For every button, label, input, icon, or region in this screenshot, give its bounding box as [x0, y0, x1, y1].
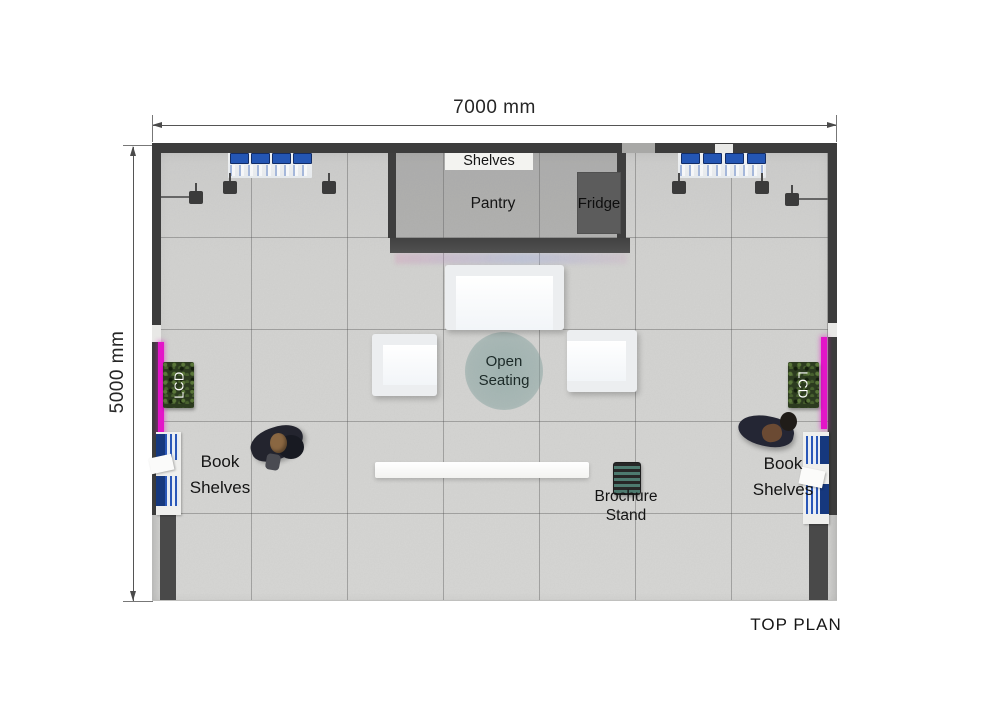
- plan-title: TOP PLAN: [711, 615, 881, 635]
- side-desk-left: [161, 196, 189, 198]
- lcd-label-left: LCD: [156, 370, 202, 401]
- dimension-left: 5000 mm: [107, 143, 149, 605]
- fridge: Fridge: [577, 172, 621, 234]
- grid-line: [347, 143, 348, 600]
- pantry-counter: [390, 238, 630, 253]
- wall-left-gap: [152, 325, 161, 342]
- extension-line-right: [836, 115, 837, 142]
- brochure-stand-label: Brochure Stand: [585, 487, 667, 525]
- arrow-left-icon: [152, 122, 162, 128]
- desk-papers: [230, 165, 310, 176]
- books: [165, 476, 179, 506]
- pantry-shelves-label: Shelves: [463, 153, 515, 169]
- chair: [672, 181, 686, 194]
- extension-tick-bottom: [123, 601, 153, 602]
- book-label-line1: Book: [743, 451, 823, 477]
- grid-line: [152, 513, 837, 514]
- extension-line-left: [152, 115, 153, 142]
- pantry-shelves: Shelves: [445, 151, 533, 170]
- monitor-icon: [272, 153, 291, 164]
- chair: [322, 181, 336, 194]
- person-head: [270, 433, 287, 453]
- exhibition-floor: Shelves Pantry Fridge: [152, 143, 837, 601]
- monitor-icon: [251, 153, 270, 164]
- sofa-seat: [567, 341, 626, 381]
- display-table: [375, 462, 589, 478]
- pantry-room: Shelves Pantry Fridge: [388, 143, 630, 253]
- open-seating-label-line2: Seating: [479, 371, 530, 390]
- book-label-line2: Shelves: [743, 477, 823, 503]
- person-bag: [265, 453, 282, 471]
- fridge-label: Fridge: [578, 195, 621, 212]
- arrow-up-icon: [130, 146, 136, 156]
- books: [156, 476, 165, 506]
- monitor-icon: [747, 153, 766, 164]
- door-gap-top: [622, 143, 655, 153]
- sofa-seat: [383, 345, 437, 385]
- extension-tick-top: [123, 145, 153, 146]
- open-seating-label-line1: Open: [486, 352, 523, 371]
- window-notch-top: [715, 144, 733, 153]
- lcd-label-right: LCD: [781, 370, 827, 401]
- floor-plan-canvas: 7000 mm 5000 mm: [0, 0, 1000, 717]
- dimension-line-vertical: [133, 147, 134, 601]
- monitor-icon: [725, 153, 744, 164]
- plant-box-left: LCD: [163, 362, 194, 408]
- monitor-icon: [703, 153, 722, 164]
- chair: [755, 181, 769, 194]
- sofa-right: [567, 330, 637, 392]
- arrow-down-icon: [130, 591, 136, 601]
- open-seating-rug: Open Seating: [465, 332, 543, 410]
- dimension-top: 7000 mm: [152, 98, 837, 144]
- brochure-label-line1: Brochure: [585, 487, 667, 506]
- book-label-line2: Shelves: [180, 475, 260, 501]
- pantry-wall-left: [388, 143, 396, 238]
- book-shelves-label-right: Book Shelves: [743, 451, 823, 503]
- monitor-icon: [230, 153, 249, 164]
- desk-papers: [680, 165, 764, 176]
- brochure-label-line2: Stand: [585, 506, 667, 525]
- book-shelves-label-left: Book Shelves: [180, 449, 260, 501]
- monitor-icon: [681, 153, 700, 164]
- book-label-line1: Book: [180, 449, 260, 475]
- grid-line: [731, 143, 732, 600]
- side-desk-right: [798, 198, 828, 200]
- chair: [223, 181, 237, 194]
- sofa-left: [372, 334, 437, 396]
- wall-top: [152, 143, 837, 153]
- dimension-line-horizontal: [152, 125, 837, 126]
- chair: [785, 193, 799, 206]
- pantry-label: Pantry: [438, 195, 548, 213]
- dimension-height-label: 5000 mm: [107, 312, 129, 432]
- monitor-icon: [293, 153, 312, 164]
- sofa-top: [445, 265, 564, 330]
- partition-bottom-left: [160, 515, 176, 600]
- partition-bottom-right: [809, 515, 828, 600]
- counter-light-glow: [395, 253, 627, 264]
- wall-right-gap: [828, 323, 837, 337]
- bookshelf-left: [156, 432, 181, 515]
- person-right: [736, 408, 800, 456]
- chair: [189, 191, 203, 204]
- dimension-width-label: 7000 mm: [152, 97, 837, 119]
- grid-line: [251, 143, 252, 600]
- person-head: [780, 412, 797, 431]
- plant-box-right: LCD: [788, 362, 819, 408]
- sofa-seat: [456, 276, 553, 330]
